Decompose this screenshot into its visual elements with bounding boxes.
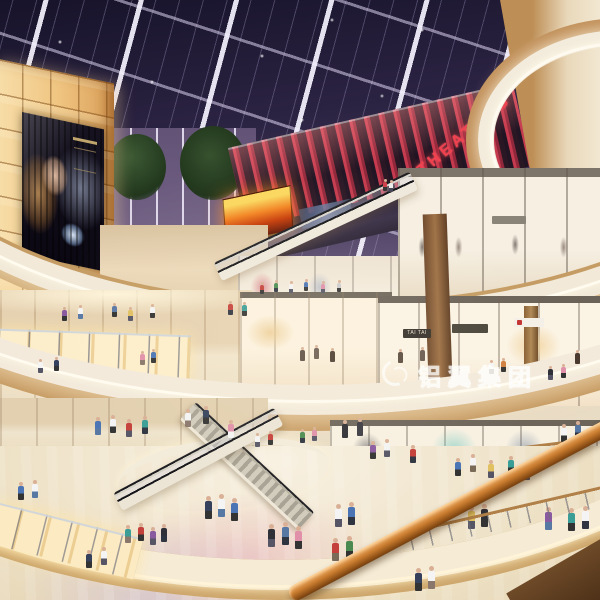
person (260, 285, 264, 294)
person (54, 360, 59, 371)
person (312, 430, 317, 441)
person (138, 527, 144, 541)
mall-atrium-rendering: THEATRES TAI TAI (0, 0, 600, 600)
person (203, 410, 209, 424)
person (228, 304, 233, 315)
mannequin (575, 353, 580, 364)
person (112, 306, 117, 317)
person (205, 501, 212, 519)
person (128, 310, 133, 321)
person (242, 305, 247, 316)
person (101, 551, 107, 565)
person (62, 310, 67, 321)
person (268, 529, 275, 547)
person (332, 543, 339, 561)
person-on-escalator (228, 424, 234, 438)
person (18, 486, 24, 500)
person (110, 419, 116, 433)
person (140, 354, 145, 365)
person (86, 554, 92, 568)
person (348, 507, 355, 525)
mannequin (330, 351, 335, 362)
person (300, 432, 305, 443)
person (582, 511, 589, 529)
person (561, 367, 566, 378)
person (150, 307, 155, 318)
person (274, 283, 278, 292)
person (161, 528, 167, 542)
mannequin (357, 422, 363, 436)
watermark: 铝翼集团 (382, 352, 552, 398)
person (383, 182, 387, 191)
person (455, 462, 461, 476)
person (255, 436, 260, 447)
person (384, 443, 390, 457)
person (428, 571, 435, 589)
person (151, 352, 156, 363)
swirl-logo-icon (378, 356, 412, 390)
person (32, 484, 38, 498)
person (488, 464, 494, 478)
person (470, 458, 476, 472)
person (337, 283, 341, 292)
person (231, 503, 238, 521)
person (304, 282, 308, 291)
person (568, 513, 575, 531)
person (125, 529, 131, 543)
person (126, 423, 132, 437)
person (268, 434, 273, 445)
person (38, 362, 43, 373)
person (410, 449, 416, 463)
watermark-text: 铝翼集团 (418, 358, 538, 392)
person (370, 445, 376, 459)
person (95, 421, 101, 435)
person (335, 509, 342, 527)
person (150, 531, 156, 545)
mannequin (314, 348, 319, 359)
mannequin (300, 350, 305, 361)
person (415, 573, 422, 591)
person (282, 527, 289, 545)
person (321, 284, 325, 293)
person (185, 413, 191, 427)
person (218, 499, 225, 517)
person (78, 308, 83, 319)
person (295, 531, 302, 549)
mannequin (342, 424, 348, 438)
person (389, 183, 393, 192)
person (289, 284, 293, 293)
person (142, 420, 148, 434)
